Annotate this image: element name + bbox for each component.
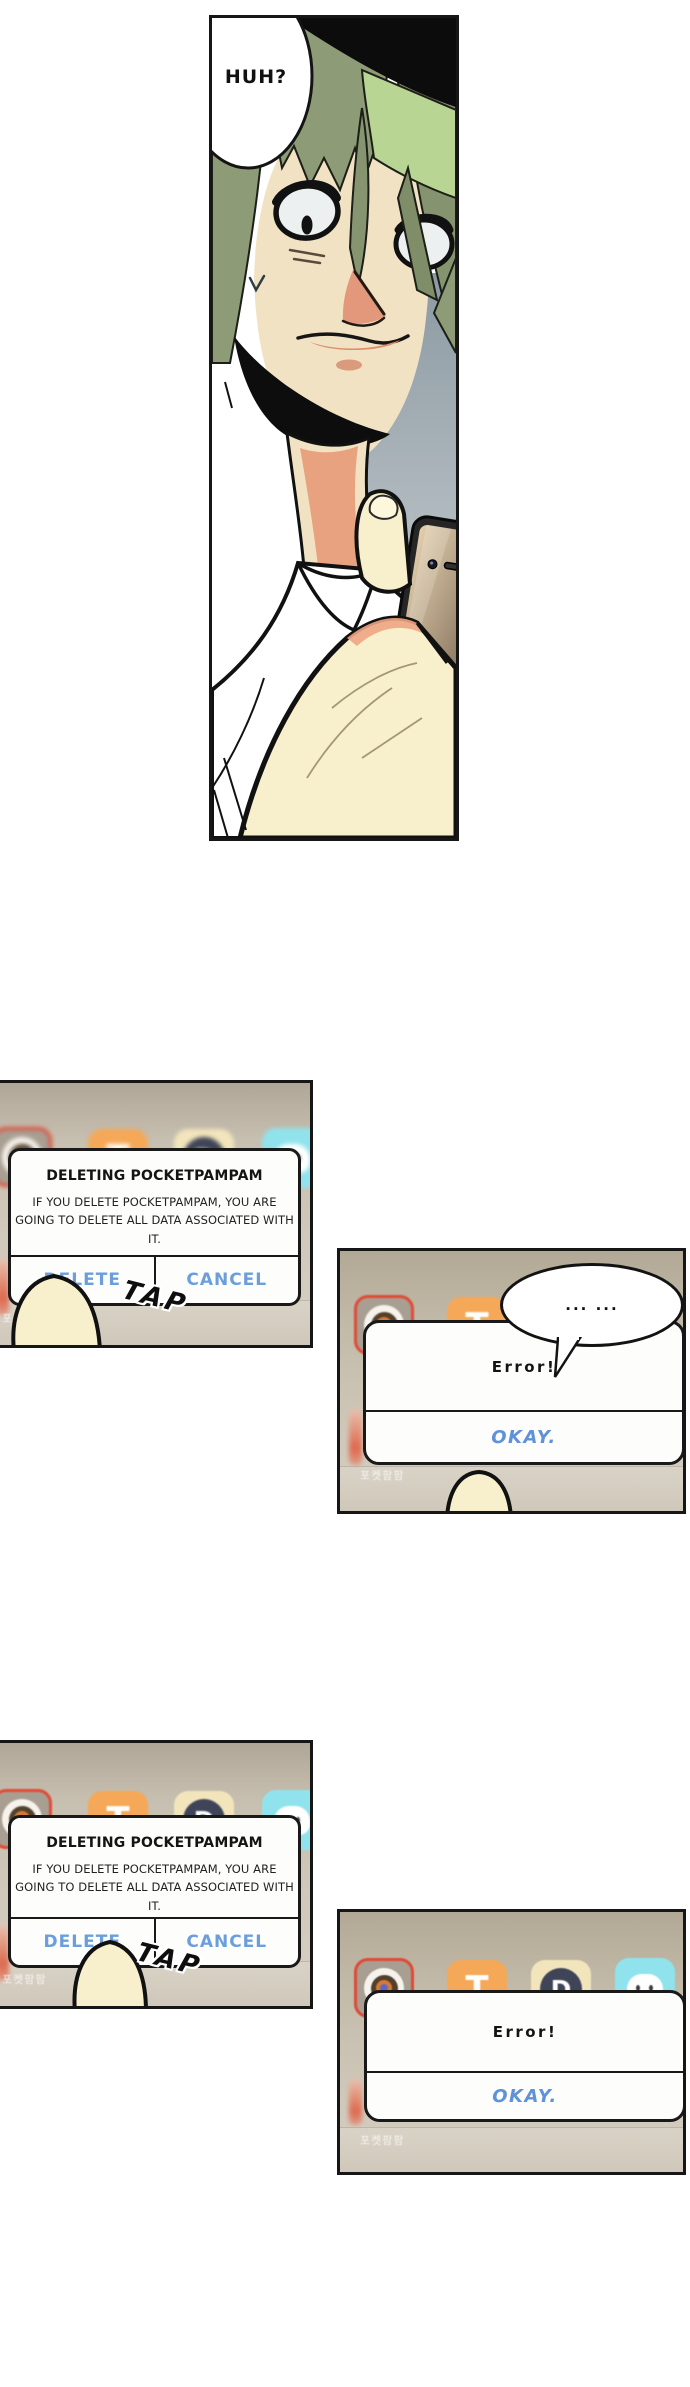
thumb	[356, 491, 410, 592]
okay-button[interactable]: OKAY.	[367, 2071, 683, 2119]
okay-button[interactable]: OKAY.	[366, 1410, 682, 1462]
speech-text-huh: HUH?	[214, 66, 298, 88]
app-label-kr: 포켓팜팜	[2, 1971, 46, 1987]
panel-error-dialog-1: T D 포켓팜팜 Error! OKAY. ... ...	[337, 1248, 686, 1514]
app-label-kr: 포켓팜팜	[360, 2132, 404, 2148]
comic-page: { "comic": { "speech_huh": "HUH?", "tap"…	[0, 0, 690, 2387]
panel-error-dialog-2: T D 포켓팜팜 Error! OKAY.	[337, 1909, 686, 2175]
dialog-title: DELETING POCKETPAMPAM	[11, 1168, 298, 1184]
error-dialog: Error! OKAY.	[364, 1990, 686, 2122]
finger	[8, 1273, 108, 1348]
dialog-title: DELETING POCKETPAMPAM	[11, 1835, 298, 1851]
fingertip	[443, 1469, 515, 1514]
panel-delete-dialog-2: T D 포켓팜팜 DELETING POCKETPAMPAM IF YOU DE…	[0, 1740, 313, 2009]
thought-bubble: ... ...	[500, 1263, 684, 1347]
error-dialog: Error! OKAY.	[363, 1320, 685, 1465]
dialog-body: IF YOU DELETE POCKETPAMPAM, YOU ARE GOIN…	[11, 1193, 298, 1248]
blurred-icon-edge	[349, 2079, 362, 2125]
bubble-tail	[552, 1337, 586, 1379]
panel-delete-dialog-1: T D 포켓팜팜 DELETING POCKETPAMPAM IF YOU DE…	[0, 1080, 313, 1348]
character-illustration	[212, 18, 456, 838]
blurred-icon-edge	[349, 1409, 362, 1465]
error-title: Error!	[367, 1993, 683, 2071]
dialog-body: IF YOU DELETE POCKETPAMPAM, YOU ARE GOIN…	[11, 1860, 298, 1915]
app-label-kr: 포켓팜팜	[360, 1467, 404, 1483]
panel-character-closeup: HUH?	[209, 15, 459, 841]
